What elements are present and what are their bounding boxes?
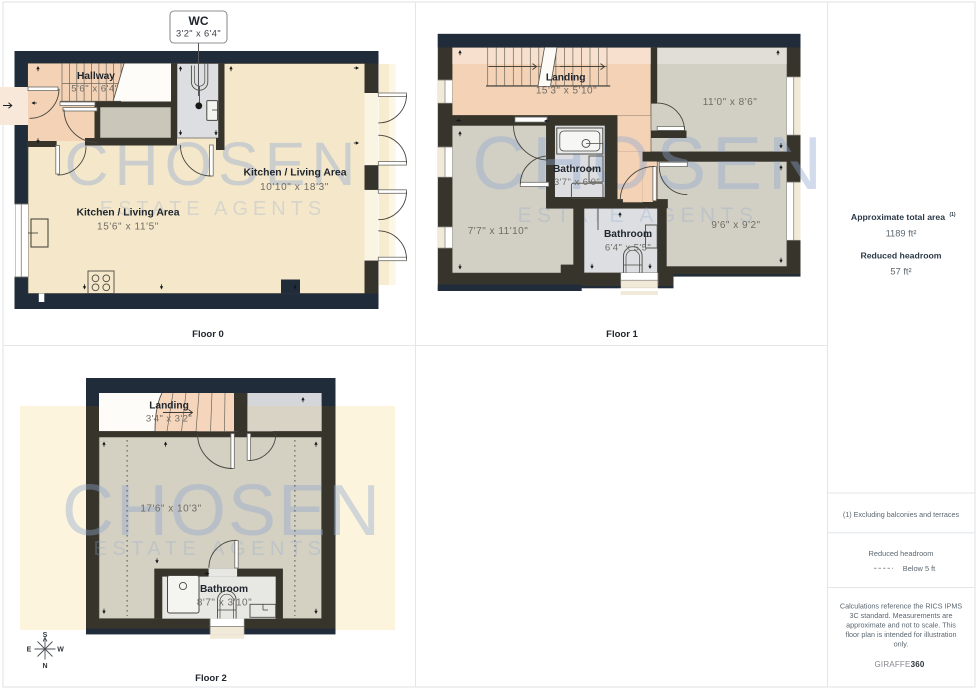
svg-text:S: S <box>43 632 48 639</box>
svg-text:Floor 0: Floor 0 <box>192 329 224 340</box>
svg-text:Reduced headroom: Reduced headroom <box>869 549 934 558</box>
svg-text:N: N <box>42 663 47 670</box>
svg-text:WC: WC <box>189 14 209 28</box>
svg-text:(1) Excluding balconies and te: (1) Excluding balconies and terraces <box>843 510 960 519</box>
svg-text:Landing: Landing <box>546 72 586 83</box>
svg-text:Bathroom: Bathroom <box>200 584 248 595</box>
svg-text:1189 ft²: 1189 ft² <box>886 229 917 239</box>
svg-text:5'6" x 6'4": 5'6" x 6'4" <box>71 84 118 95</box>
svg-text:10'10" x 18'3": 10'10" x 18'3" <box>260 182 329 193</box>
svg-text:3'7" x 6'0": 3'7" x 6'0" <box>554 177 600 188</box>
svg-text:15'3" x 5'10": 15'3" x 5'10" <box>536 86 597 97</box>
svg-text:7'7" x 11'10": 7'7" x 11'10" <box>468 226 529 237</box>
svg-text:only.: only. <box>894 640 909 649</box>
svg-text:Below 5 ft: Below 5 ft <box>903 564 935 573</box>
svg-text:Floor 1: Floor 1 <box>606 329 638 340</box>
svg-text:Calculations reference the RIC: Calculations reference the RICS IPMS <box>840 602 962 611</box>
svg-text:11'0" x 8'6": 11'0" x 8'6" <box>703 97 758 108</box>
svg-text:ESTATE AGENTS: ESTATE AGENTS <box>93 538 326 560</box>
svg-text:floor plan is intended for ill: floor plan is intended for illustration <box>845 630 956 639</box>
svg-text:W: W <box>57 647 64 654</box>
svg-text:CHOSEN: CHOSEN <box>472 121 828 205</box>
svg-text:Landing: Landing <box>149 401 189 412</box>
svg-text:Reduced headroom: Reduced headroom <box>860 251 941 261</box>
svg-text:3'2" x 6'4": 3'2" x 6'4" <box>176 29 221 39</box>
svg-text:Hallway: Hallway <box>77 71 115 82</box>
svg-text:9'6" x 9'2": 9'6" x 9'2" <box>711 220 760 231</box>
svg-text:Floor 2: Floor 2 <box>195 673 227 684</box>
svg-text:57 ft²: 57 ft² <box>890 267 911 277</box>
svg-text:Bathroom: Bathroom <box>604 229 652 240</box>
svg-text:Kitchen / Living Area: Kitchen / Living Area <box>244 168 347 179</box>
svg-text:3C standard. Measurements are: 3C standard. Measurements are <box>849 611 952 620</box>
svg-text:GIRAFFE360: GIRAFFE360 <box>874 660 924 669</box>
svg-text:15'6" x 11'5": 15'6" x 11'5" <box>97 222 159 233</box>
svg-text:Approximate total area: Approximate total area <box>851 212 945 222</box>
svg-text:17'6" x 10'3": 17'6" x 10'3" <box>140 504 201 515</box>
svg-text:(1): (1) <box>949 212 955 218</box>
svg-text:approximate and not to scale.: approximate and not to scale. This <box>846 621 956 630</box>
svg-text:Bathroom: Bathroom <box>553 164 601 175</box>
svg-text:3'4" x 3'2": 3'4" x 3'2" <box>146 414 192 425</box>
svg-text:8'7" x 3'10": 8'7" x 3'10" <box>197 598 252 609</box>
svg-text:6'4" x 5'5": 6'4" x 5'5" <box>605 243 651 254</box>
svg-text:Kitchen / Living Area: Kitchen / Living Area <box>77 208 180 219</box>
svg-text:E: E <box>27 647 32 654</box>
